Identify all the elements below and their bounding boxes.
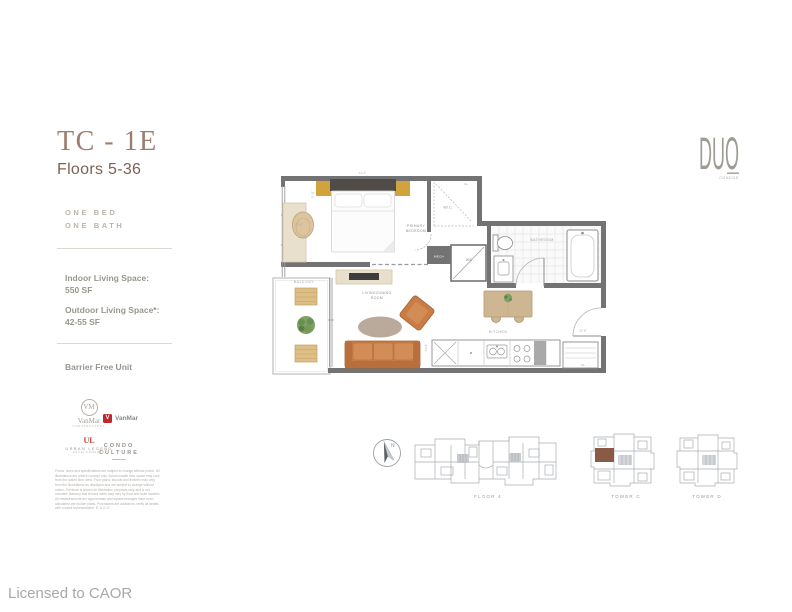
indoor-space-value: 550 SF	[65, 284, 149, 296]
wd-label: W/D	[466, 258, 473, 262]
stair-core-icon	[618, 455, 632, 465]
primary-bedroom-label-1: PRIMARY	[407, 224, 426, 228]
toilet-icon	[493, 235, 513, 251]
condo-culture-divider	[112, 459, 126, 460]
dim-top: 11'-4"	[359, 171, 366, 175]
keyplan-tower-c	[588, 431, 658, 489]
tv-icon	[349, 273, 379, 280]
nightstand-icon	[316, 181, 331, 196]
stair-core-icon	[457, 453, 521, 463]
bed-bath-summary: ONE BED ONE BATH	[65, 206, 124, 232]
compass-icon: N	[368, 434, 408, 474]
divider	[57, 248, 172, 249]
wic-label: W.I.C.	[443, 206, 452, 210]
vanmar-red-logo: V VanMar	[103, 414, 138, 423]
bath-count: ONE BATH	[65, 219, 124, 232]
bathroom-label: BATHROOM	[530, 238, 553, 242]
balcony: BALCONY	[273, 278, 330, 374]
balcony-bench-icon	[295, 345, 317, 362]
duo-underline	[727, 173, 739, 174]
bathtub-icon	[567, 230, 598, 281]
indoor-space-label: Indoor Living Space:	[65, 272, 149, 284]
duo-brand-logo: DUO CONDOS	[697, 133, 759, 181]
condo-culture-line2: CULTURE	[98, 450, 140, 457]
media-console	[336, 270, 392, 284]
mech-label: MECH	[434, 255, 444, 259]
highlighted-unit	[595, 448, 614, 462]
outdoor-space-value: 42-55 SF	[65, 316, 159, 328]
kitchen: KITCHEN	[432, 291, 560, 366]
balcony-bench-icon	[295, 288, 317, 305]
indoor-space: Indoor Living Space: 550 SF	[65, 272, 149, 296]
vanmar-monogram-icon: VM	[81, 399, 98, 416]
headboard-icon	[330, 179, 396, 191]
balcony-label: BALCONY	[294, 280, 314, 284]
living-label-2: ROOM	[371, 296, 383, 300]
keyplan-tower-c-label: TOWER C	[595, 494, 657, 499]
keyplan-tower-d	[675, 433, 739, 488]
disclaimer-text: Prices, sizes and specifications are sub…	[55, 469, 161, 511]
condo-culture-logo: CONDO CULTURE	[98, 443, 140, 460]
dim-bedroom-width: 13'-6"	[295, 223, 303, 227]
sink-icon	[487, 345, 507, 358]
living-dining-room: LIVING/DINING ROOM	[345, 291, 435, 368]
divider	[57, 343, 172, 344]
vanmar-sub: CONSTRUCTORS	[70, 425, 108, 428]
kitchen-label: KITCHEN	[489, 330, 507, 334]
unit-code-title: TC - 1E	[57, 126, 158, 158]
entry-door-arc	[573, 308, 601, 336]
vanmar-red-name: VanMar	[115, 415, 138, 422]
condo-culture-line1: CONDO	[98, 443, 140, 450]
cl-top-label: CL	[464, 182, 468, 186]
dim-bedroom-depth: 9'-11"	[311, 191, 315, 198]
bathroom: BATHROOM	[492, 226, 601, 286]
keyplan-floor-label: FLOOR 4	[448, 494, 528, 499]
pantry-icon	[534, 341, 546, 365]
living-label-1: LIVING/DINING	[362, 291, 391, 295]
primary-bedroom: PRIMARY BEDROOM	[283, 179, 426, 262]
vanity-sink-icon	[494, 256, 513, 282]
wic-shelving	[434, 182, 474, 226]
license-text: Licensed to CAOR	[8, 585, 132, 602]
outdoor-space: Outdoor Living Space*: 42-55 SF	[65, 304, 159, 328]
compass-north-label: N	[391, 443, 395, 449]
washer-dryer: W/D	[451, 245, 486, 281]
sofa-icon	[345, 341, 420, 368]
entry-closet-label: CL	[581, 363, 585, 367]
duo-wordmark: DUO	[699, 133, 739, 179]
entry-closet: CL	[563, 342, 598, 368]
kitchen-island	[484, 291, 532, 323]
dim-entry: 11'-6"	[579, 329, 586, 333]
unit-floorplan: BALCONY	[270, 170, 610, 390]
barrier-free-label: Barrier Free Unit	[65, 362, 132, 372]
plant-icon	[297, 316, 315, 334]
bed-count: ONE BED	[65, 206, 124, 219]
dim-living: 11'-6"	[424, 344, 428, 351]
keyplan-floor	[413, 435, 558, 489]
nightstand-icon	[395, 181, 410, 196]
keyplan-tower-d-label: TOWER D	[676, 494, 738, 499]
stair-core-icon	[702, 455, 716, 465]
armchair-icon	[399, 295, 435, 331]
rug-icon	[358, 317, 402, 338]
primary-bedroom-label-2: BEDROOM	[406, 229, 426, 233]
outdoor-space-label: Outdoor Living Space*:	[65, 304, 159, 316]
vanmar-red-icon: V	[103, 414, 112, 423]
duo-sub: CONDOS	[719, 176, 739, 180]
unit-floors: Floors 5-36	[57, 161, 141, 179]
